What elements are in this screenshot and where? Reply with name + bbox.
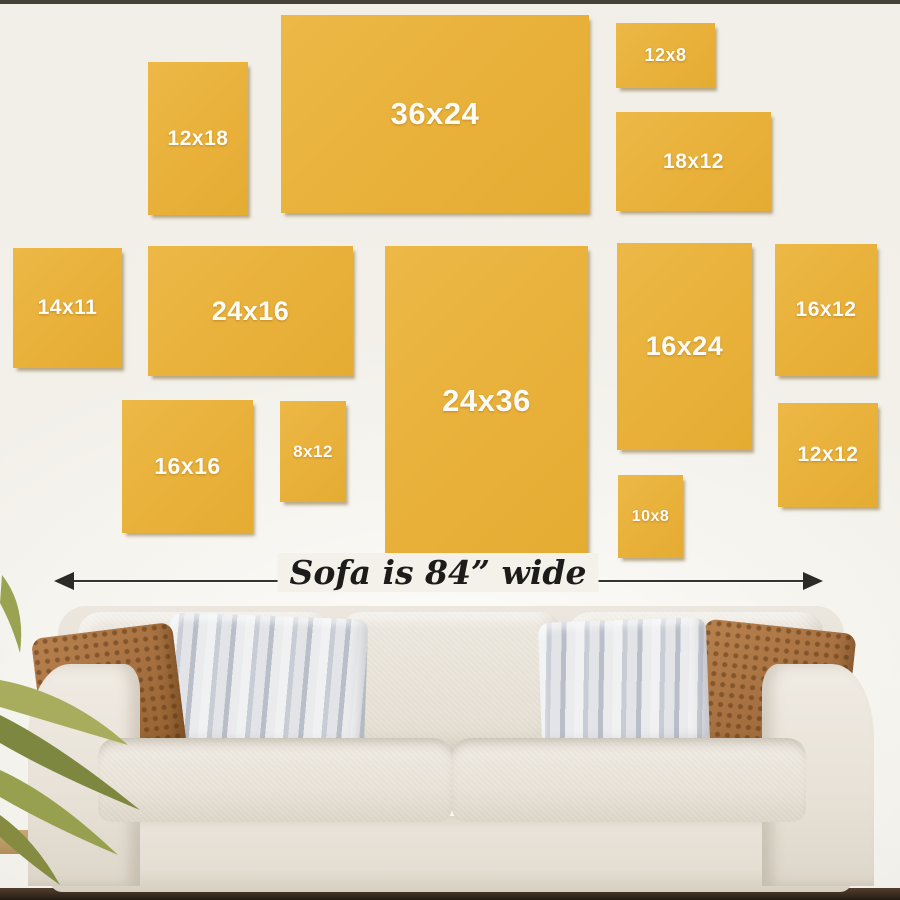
frame-12x12: 12x12 xyxy=(778,403,878,507)
frame-24x36: 24x36 xyxy=(385,246,588,555)
frame-size-label: 8x12 xyxy=(293,442,333,462)
frame-size-label: 16x24 xyxy=(646,331,724,362)
frame-size-label: 12x12 xyxy=(798,443,859,467)
frame-size-label: 14x11 xyxy=(38,296,98,320)
frame-24x16: 24x16 xyxy=(148,246,353,376)
frame-16x24: 16x24 xyxy=(617,243,752,450)
frame-16x16: 16x16 xyxy=(122,400,253,533)
sofa-width-caption: Sofa is 84” wide xyxy=(278,553,599,592)
frame-12x18: 12x18 xyxy=(148,62,248,215)
sofa-seat-cushion-right xyxy=(452,738,806,822)
frame-size-label: 16x12 xyxy=(796,298,857,322)
arrow-right-icon xyxy=(803,572,823,590)
frame-12x8: 12x8 xyxy=(616,23,715,88)
striped-pillow-left xyxy=(166,613,369,758)
frame-size-label: 36x24 xyxy=(391,96,480,132)
sofa-seat-cushion-left xyxy=(98,738,452,822)
frame-36x24: 36x24 xyxy=(281,15,589,213)
frame-size-label: 12x8 xyxy=(644,45,686,66)
frame-size-label: 18x12 xyxy=(663,150,724,174)
plant-leaves xyxy=(0,575,150,900)
frame-8x12: 8x12 xyxy=(280,401,346,502)
frame-10x8: 10x8 xyxy=(618,475,683,558)
top-border xyxy=(0,0,900,4)
frame-size-label: 24x16 xyxy=(212,296,290,327)
striped-pillow-right xyxy=(538,617,711,755)
size-guide-scene: 12x18 36x24 12x8 18x12 14x11 24x16 24x36… xyxy=(0,0,900,900)
sofa-base xyxy=(50,816,852,892)
frame-14x11: 14x11 xyxy=(13,248,122,368)
frame-18x12: 18x12 xyxy=(616,112,771,211)
frame-16x12: 16x12 xyxy=(775,244,877,376)
frame-size-label: 10x8 xyxy=(632,508,670,526)
frame-size-label: 16x16 xyxy=(154,453,220,480)
frame-size-label: 12x18 xyxy=(168,127,229,151)
frame-size-label: 24x36 xyxy=(442,383,531,419)
